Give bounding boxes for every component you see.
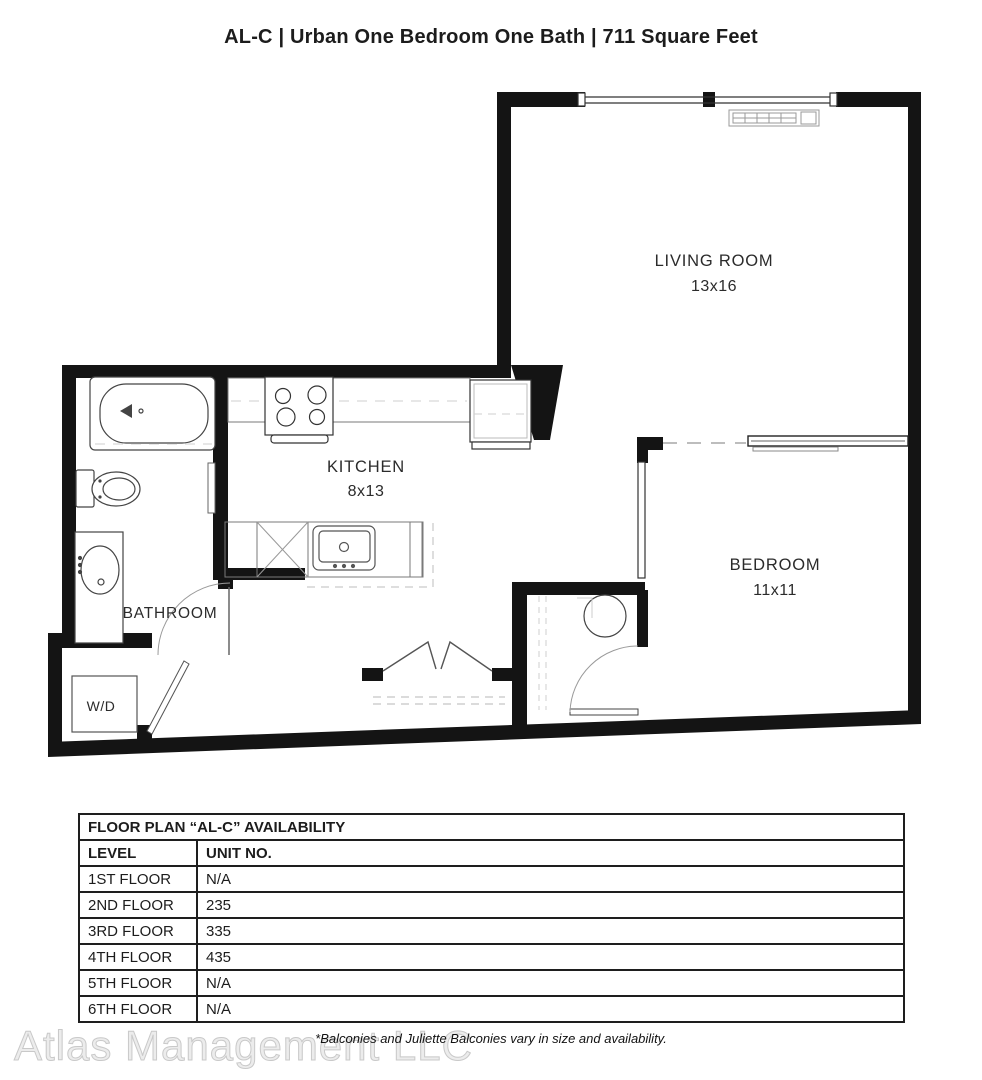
table-header-row: LEVEL UNIT NO. <box>79 840 904 866</box>
kitchen-sink <box>313 526 375 570</box>
level-cell: 2ND FLOOR <box>79 892 197 918</box>
bedroom-dims: 11x11 <box>753 582 797 599</box>
table-title: FLOOR PLAN “AL-C” AVAILABILITY <box>79 814 904 840</box>
stove <box>265 377 333 443</box>
watermark: Atlas Management LLC <box>14 1022 473 1070</box>
bedroom-sliding-door <box>663 436 908 451</box>
living-room-dims: 13x16 <box>691 278 737 295</box>
kitchen-label: KITCHEN <box>327 458 405 476</box>
table-row: 3RD FLOOR 335 <box>79 918 904 944</box>
unit-cell: 335 <box>197 918 904 944</box>
table-row: 2ND FLOOR 235 <box>79 892 904 918</box>
unit-cell: N/A <box>197 996 904 1022</box>
unit-cell: N/A <box>197 866 904 892</box>
entry-door <box>147 661 189 734</box>
divider-niche <box>208 463 215 513</box>
utility-closet <box>539 595 638 715</box>
unit-cell: N/A <box>197 970 904 996</box>
vanity-sink <box>75 532 123 643</box>
unit-cell: 235 <box>197 892 904 918</box>
unit-column-header: UNIT NO. <box>197 840 904 866</box>
level-cell: 1ST FLOOR <box>79 866 197 892</box>
table-row: 4TH FLOOR 435 <box>79 944 904 970</box>
floor-plan-sheet: AL-C | Urban One Bedroom One Bath | 711 … <box>0 0 982 1080</box>
refrigerator <box>470 380 531 449</box>
wd-label: W/D <box>87 698 116 714</box>
entry-closet-bifold <box>373 642 505 704</box>
washer-dryer-closet: W/D <box>72 676 137 732</box>
level-column-header: LEVEL <box>79 840 197 866</box>
kitchen-upper-counter <box>228 378 470 422</box>
level-cell: 3RD FLOOR <box>79 918 197 944</box>
toilet <box>76 470 140 507</box>
bedroom-label: BEDROOM <box>730 556 821 574</box>
availability-table: FLOOR PLAN “AL-C” AVAILABILITY LEVEL UNI… <box>78 813 905 1023</box>
bedroom-closet-wall <box>638 462 645 578</box>
table-row: 1ST FLOOR N/A <box>79 866 904 892</box>
table-title-row: FLOOR PLAN “AL-C” AVAILABILITY <box>79 814 904 840</box>
table-row: 6TH FLOOR N/A <box>79 996 904 1022</box>
level-cell: 4TH FLOOR <box>79 944 197 970</box>
unit-cell: 435 <box>197 944 904 970</box>
bathtub <box>90 377 215 450</box>
kitchen-dims: 8x13 <box>348 483 385 500</box>
table-row: 5TH FLOOR N/A <box>79 970 904 996</box>
living-room-label: LIVING ROOM <box>655 252 774 270</box>
level-cell: 5TH FLOOR <box>79 970 197 996</box>
level-cell: 6TH FLOOR <box>79 996 197 1022</box>
bathroom-label: BATHROOM <box>123 605 218 622</box>
footnote: *Balconies and Juliette Balconies vary i… <box>0 1031 982 1046</box>
baseboard-heater <box>729 110 819 126</box>
